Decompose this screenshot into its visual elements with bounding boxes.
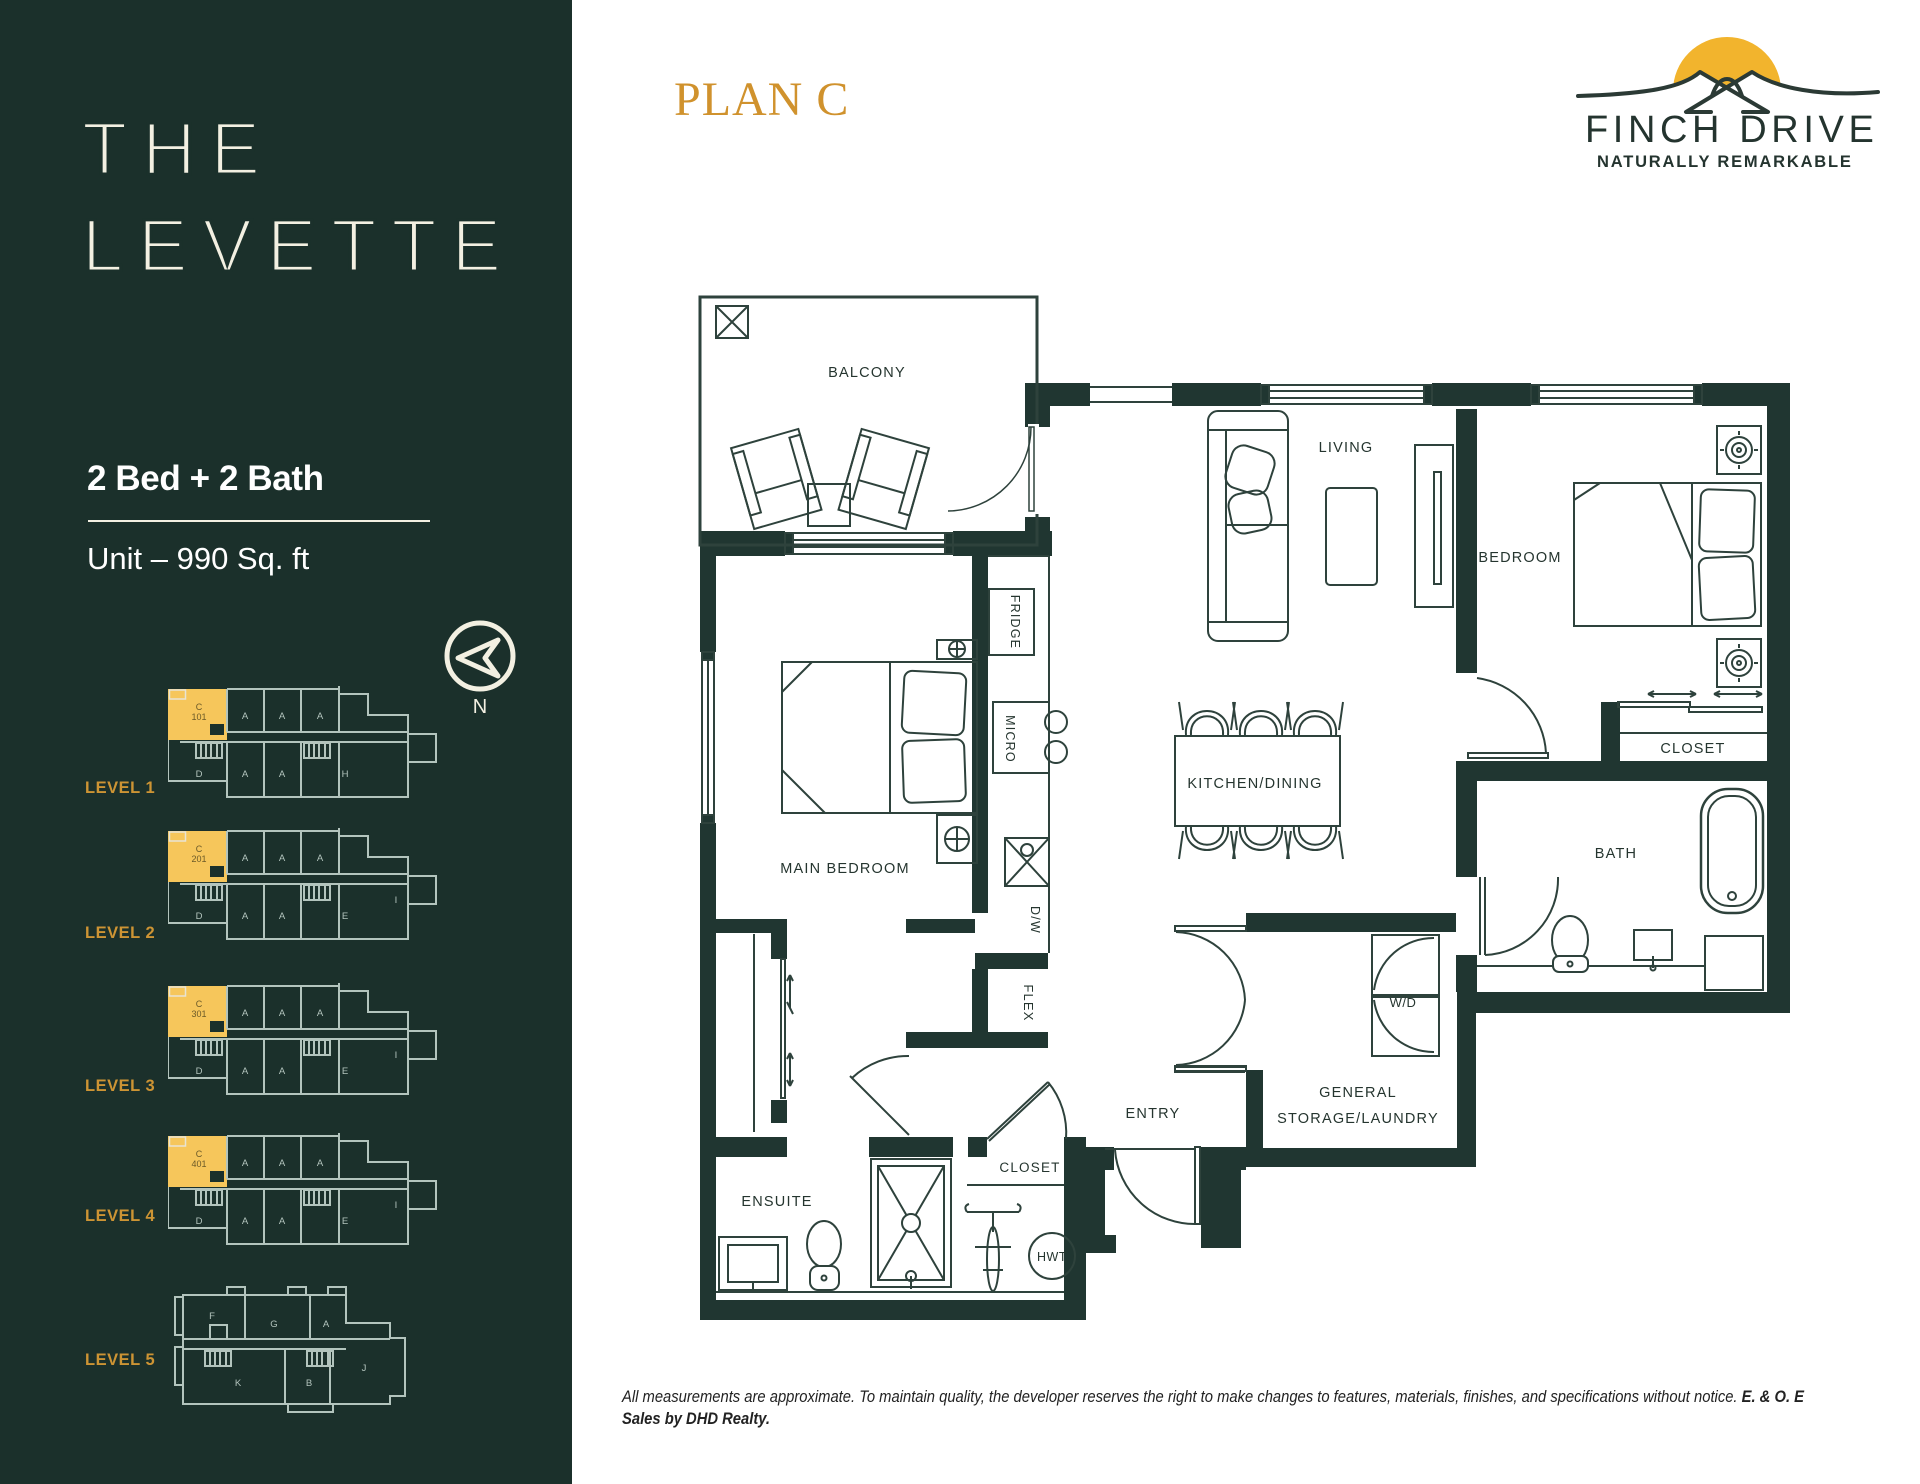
svg-text:STORAGE/LAUNDRY: STORAGE/LAUNDRY	[1277, 1111, 1439, 1127]
svg-text:BATH: BATH	[1595, 846, 1637, 862]
svg-text:BEDROOM: BEDROOM	[1478, 550, 1561, 566]
svg-text:ENTRY: ENTRY	[1126, 1106, 1181, 1122]
svg-text:CLOSET: CLOSET	[999, 1160, 1060, 1175]
svg-text:D/W: D/W	[1028, 906, 1042, 934]
svg-text:MICRO: MICRO	[1003, 715, 1017, 763]
svg-text:LIVING: LIVING	[1319, 440, 1374, 456]
svg-text:FLEX: FLEX	[1021, 984, 1036, 1021]
svg-text:KITCHEN/DINING: KITCHEN/DINING	[1187, 776, 1322, 792]
svg-text:CLOSET: CLOSET	[1660, 741, 1725, 757]
svg-text:HWT: HWT	[1037, 1250, 1067, 1264]
svg-text:MAIN BEDROOM: MAIN BEDROOM	[780, 861, 910, 877]
svg-text:BALCONY: BALCONY	[828, 365, 906, 381]
svg-text:FRIDGE: FRIDGE	[1008, 595, 1022, 649]
svg-text:W/D: W/D	[1390, 995, 1417, 1010]
svg-text:GENERAL: GENERAL	[1319, 1085, 1397, 1101]
svg-text:ENSUITE: ENSUITE	[741, 1194, 812, 1210]
